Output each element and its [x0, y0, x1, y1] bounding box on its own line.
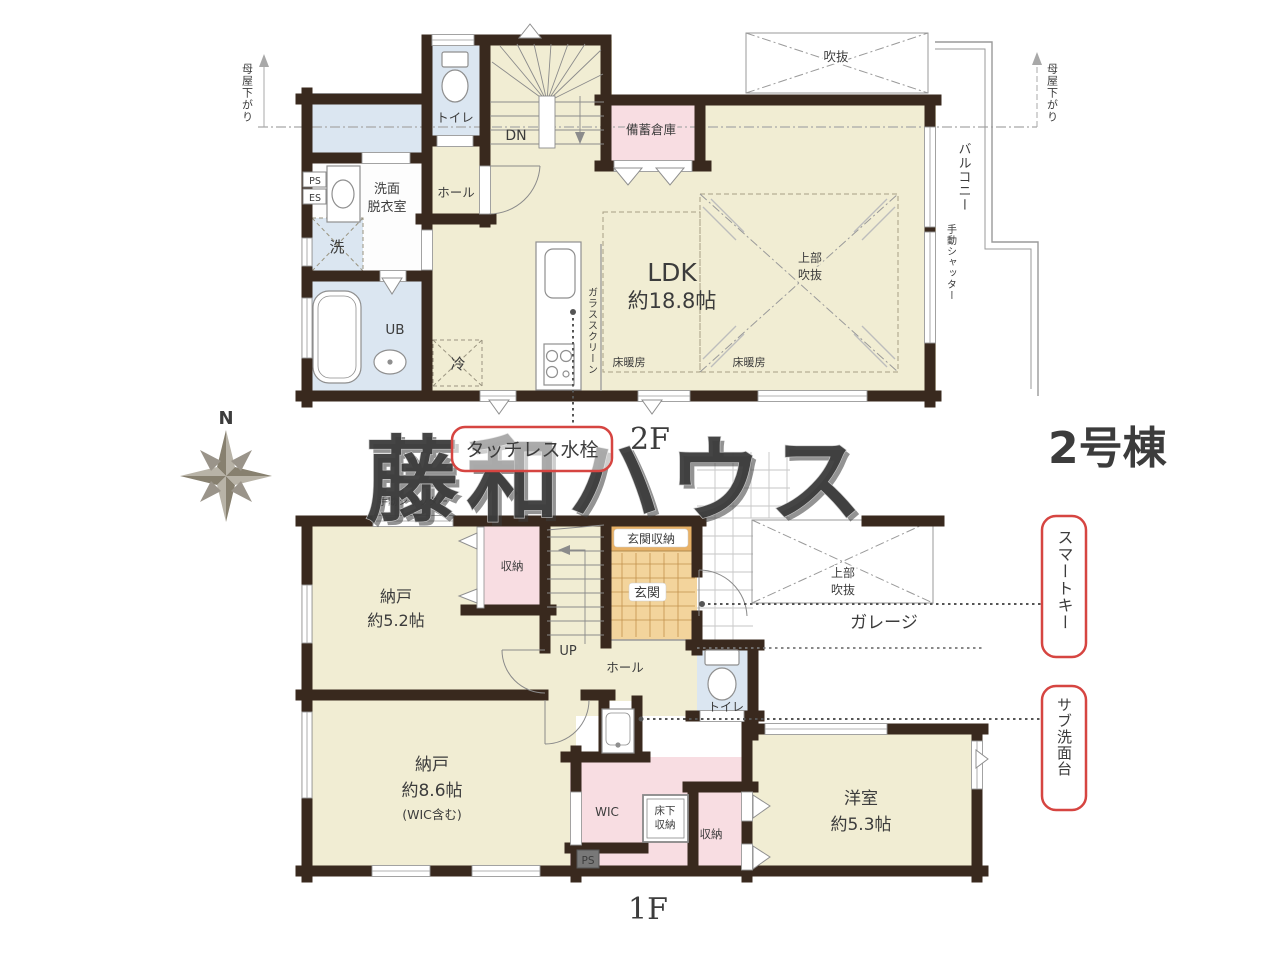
toilet-bowl-1f: [708, 668, 736, 700]
bath-label: UB: [385, 322, 404, 338]
stairs-up-label: UP: [559, 644, 577, 659]
toilet-1f-label: トイレ: [708, 700, 744, 714]
upper-void-2f-label-1: 上部: [798, 250, 822, 265]
moya-sagari-right-label: 母屋下がり: [1046, 63, 1059, 123]
es-2f-label: ES: [309, 193, 321, 204]
toilet-2f-label: トイレ: [436, 110, 474, 125]
closet-lower-label: 収納: [700, 827, 723, 841]
ldk-label-2: 約18.8帖: [628, 289, 717, 313]
toilet-tank-2f: [442, 52, 468, 67]
floor-1-label: 1F: [628, 892, 668, 927]
touchless-faucet-label: タッチレス水栓: [465, 439, 598, 461]
compass-rose: N: [180, 408, 272, 522]
floor-2-label: 2F: [630, 422, 670, 457]
balcony-label: バルコニー: [956, 142, 972, 212]
void-2f-label: 吹抜: [823, 49, 849, 64]
upper-void-1f-label-1: 上部: [831, 565, 855, 580]
floorplan-canvas: N トイレ ホール DN 備蓄倉庫 洗面 脱衣室 洗 UB 冷 LDK 約18.…: [0, 0, 1280, 960]
closet-upper-label: 収納: [501, 559, 524, 573]
ps-2f-label: PS: [309, 176, 321, 187]
moya-sagari-left-label: 母屋下がり: [241, 63, 254, 123]
toilet-bowl-2f: [442, 70, 468, 102]
compass-north-label: N: [218, 408, 233, 429]
manual-shutter-2f-label: 手動シャッター: [945, 223, 957, 301]
annotation-touchless-faucet: タッチレス水栓: [452, 427, 612, 471]
underfloor-label-2: 収納: [655, 818, 676, 831]
hall-2f-label: ホール: [437, 185, 475, 200]
storeroom-large-label-3: (WIC含む): [402, 807, 462, 822]
floor-heating-right-label: 床暖房: [733, 355, 766, 369]
floor-2-plan: [258, 24, 1042, 427]
kitchen-sink: [545, 249, 575, 298]
storeroom-large-label-2: 約8.6帖: [401, 781, 462, 801]
smart-key-label: スマートキー: [1055, 529, 1074, 631]
balcony-outline: [935, 42, 1038, 396]
floorplan-svg: N トイレ ホール DN 備蓄倉庫 洗面 脱衣室 洗 UB 冷 LDK 約18.…: [0, 0, 1280, 960]
sub-washstand-label: サブ洗面台: [1055, 697, 1073, 777]
stock-room-label: 備蓄倉庫: [626, 122, 676, 137]
storeroom-small-label-1: 納戸: [380, 587, 412, 606]
watermark-text: 藤和ハウス: [366, 427, 871, 535]
western-room-label-2: 約5.3帖: [830, 815, 891, 835]
ldk-label-1: LDK: [647, 258, 697, 287]
fridge-label: 冷: [450, 355, 465, 373]
storeroom-large-label-1: 納戸: [415, 755, 449, 775]
stairs-dn-label: DN: [505, 128, 526, 144]
floor-heating-left-label: 床暖房: [613, 355, 646, 369]
washroom-label-1: 洗面: [374, 182, 400, 197]
underfloor-label-1: 床下: [655, 804, 676, 817]
ps-1f-label: PS: [582, 855, 595, 867]
watermark: 藤和ハウス 藤和ハウス: [366, 427, 875, 539]
stove: [544, 344, 574, 385]
building-label: 2号棟: [1048, 423, 1168, 474]
garage-label: ガレージ: [850, 613, 918, 633]
storeroom-small-label-2: 約5.2帖: [367, 611, 424, 630]
wic-label: WIC: [595, 805, 619, 819]
entrance-label: 玄関: [634, 586, 660, 601]
upper-void-2f-label-2: 吹抜: [798, 268, 822, 282]
toilet-tank-1f: [705, 650, 739, 665]
hall-1f-label: ホール: [606, 660, 644, 675]
annotation-smart-key: スマートキー: [1042, 516, 1086, 657]
laundry-label: 洗: [329, 238, 344, 256]
upper-void-1f-label-2: 吹抜: [831, 583, 855, 597]
washroom-label-2: 脱衣室: [367, 199, 406, 215]
western-room-label-1: 洋室: [844, 789, 878, 809]
glass-screen-label: ガラススクリーン: [586, 287, 597, 375]
annotation-sub-washstand: サブ洗面台: [1042, 686, 1086, 810]
